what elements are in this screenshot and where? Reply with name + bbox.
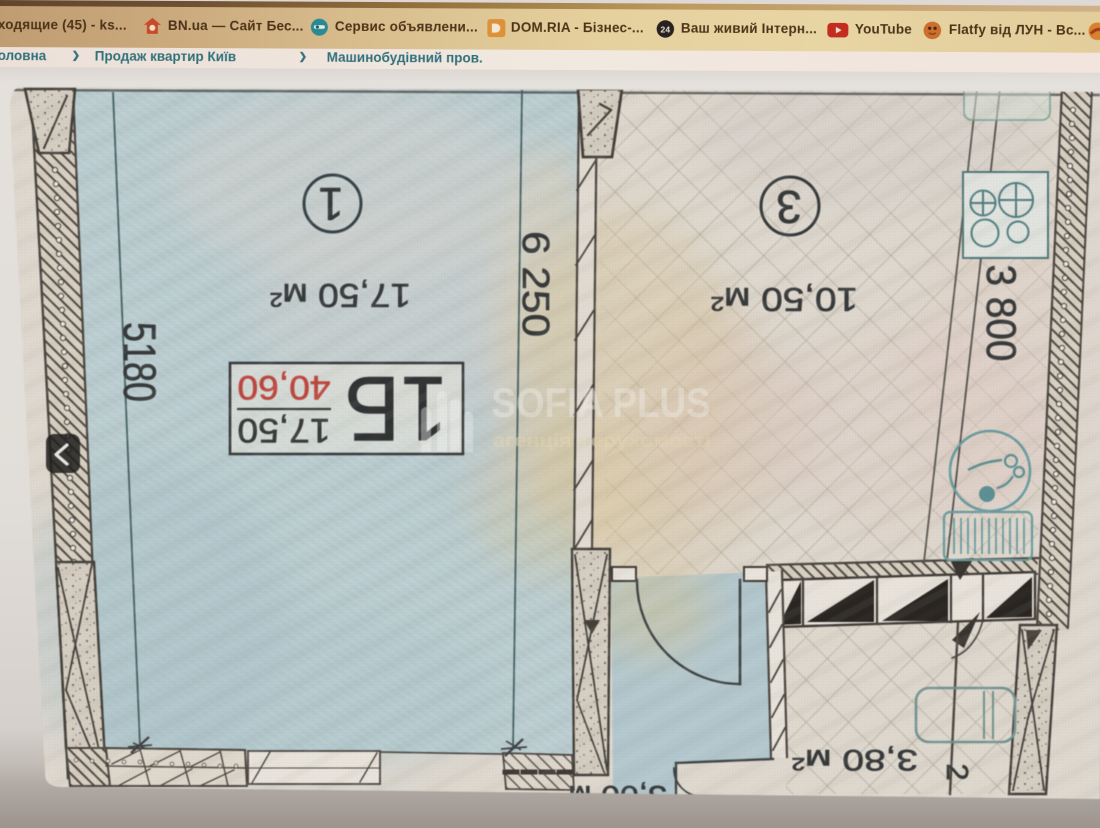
- svg-text:24: 24: [660, 24, 670, 34]
